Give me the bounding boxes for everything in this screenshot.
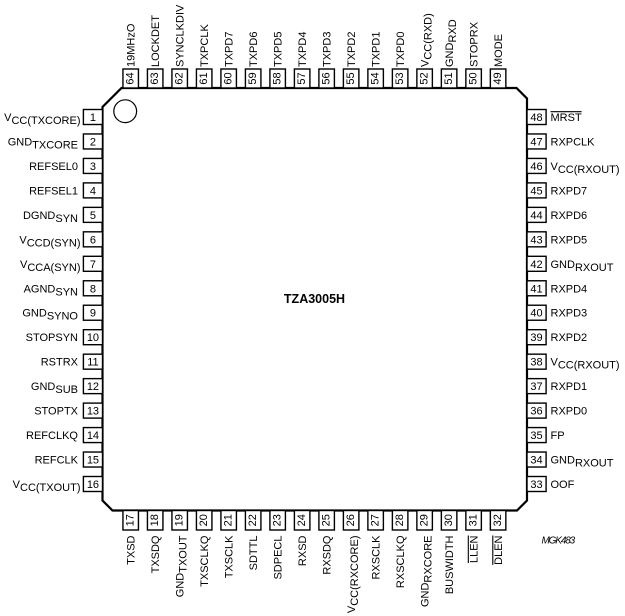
svg-text:14: 14 [87, 430, 99, 442]
svg-text:40: 40 [530, 308, 542, 320]
svg-text:19: 19 [174, 514, 186, 526]
svg-text:RXSDQ: RXSDQ [322, 535, 334, 575]
svg-text:RXPD6: RXPD6 [551, 210, 588, 222]
svg-text:34: 34 [530, 455, 542, 467]
svg-text:VCC(RXOUT): VCC(RXOUT) [551, 161, 620, 176]
svg-text:53: 53 [394, 72, 406, 84]
svg-text:RXPD5: RXPD5 [551, 234, 588, 246]
svg-text:11: 11 [87, 357, 98, 369]
svg-text:REFCLKQ: REFCLKQ [26, 430, 78, 442]
svg-text:LLEN: LLEN [469, 535, 481, 563]
svg-text:17: 17 [125, 514, 137, 526]
svg-text:MODE: MODE [493, 34, 505, 67]
svg-text:TXPD1: TXPD1 [371, 32, 383, 67]
svg-text:2: 2 [90, 136, 96, 148]
svg-text:45: 45 [530, 185, 542, 197]
svg-text:RXSCLK: RXSCLK [371, 535, 383, 580]
svg-text:DLEN: DLEN [493, 535, 505, 564]
svg-text:29: 29 [419, 514, 431, 526]
svg-text:DGNDSYN: DGNDSYN [23, 210, 78, 225]
svg-text:RXPD4: RXPD4 [551, 283, 588, 295]
svg-text:43: 43 [530, 234, 542, 246]
svg-text:6: 6 [90, 234, 96, 246]
svg-text:7: 7 [90, 259, 96, 271]
svg-text:VCCA(SYN): VCCA(SYN) [20, 259, 81, 274]
svg-text:BUSWIDTH: BUSWIDTH [444, 535, 456, 594]
svg-text:51: 51 [443, 72, 455, 84]
svg-text:57: 57 [296, 72, 308, 84]
svg-text:RXPD3: RXPD3 [551, 308, 588, 320]
svg-text:TXSDQ: TXSDQ [150, 535, 162, 573]
svg-text:RXPD7: RXPD7 [551, 185, 588, 197]
svg-text:62: 62 [174, 72, 186, 84]
svg-text:20: 20 [198, 514, 210, 526]
svg-text:TZA3005H: TZA3005H [284, 292, 345, 306]
svg-text:LOCKDET: LOCKDET [150, 15, 162, 67]
svg-text:TXPCLK: TXPCLK [199, 24, 211, 67]
svg-text:TXPD0: TXPD0 [395, 32, 407, 67]
svg-text:8: 8 [90, 283, 96, 295]
svg-text:60: 60 [223, 72, 235, 84]
svg-text:59: 59 [247, 72, 259, 84]
svg-text:1: 1 [90, 112, 96, 124]
svg-text:VCCD(SYN): VCCD(SYN) [19, 234, 80, 249]
svg-text:25: 25 [321, 514, 333, 526]
svg-text:SYNCLKDIV: SYNCLKDIV [175, 4, 187, 67]
svg-text:RXPD2: RXPD2 [551, 332, 588, 344]
svg-text:48: 48 [530, 112, 542, 124]
svg-text:39: 39 [530, 332, 542, 344]
svg-text:3: 3 [90, 161, 96, 173]
svg-text:22: 22 [247, 514, 259, 526]
svg-text:GNDRXOUT: GNDRXOUT [551, 259, 614, 274]
svg-text:31: 31 [468, 514, 480, 526]
svg-text:GNDTXOUT: GNDTXOUT [175, 535, 190, 597]
svg-text:GNDSUB: GNDSUB [31, 381, 78, 396]
svg-text:42: 42 [530, 259, 542, 271]
svg-text:15: 15 [87, 455, 99, 467]
svg-text:REFSEL1: REFSEL1 [29, 185, 78, 197]
svg-text:GNDRXOUT: GNDRXOUT [551, 455, 614, 470]
svg-text:61: 61 [198, 72, 210, 84]
svg-text:STOPSYN: STOPSYN [26, 332, 78, 344]
svg-text:47: 47 [530, 136, 542, 148]
svg-text:12: 12 [87, 381, 99, 393]
svg-text:TXPD6: TXPD6 [248, 32, 260, 67]
svg-text:32: 32 [492, 514, 504, 526]
svg-text:44: 44 [530, 210, 542, 222]
svg-text:OOF: OOF [551, 479, 575, 491]
svg-text:49: 49 [492, 72, 504, 84]
svg-text:REFCLK: REFCLK [35, 455, 79, 467]
svg-text:4: 4 [90, 185, 96, 197]
svg-text:GNDSYNO: GNDSYNO [22, 308, 78, 323]
svg-text:55: 55 [345, 72, 357, 84]
svg-text:RSTRX: RSTRX [41, 357, 79, 369]
svg-text:19MHzO: 19MHzO [126, 23, 138, 67]
svg-text:64: 64 [125, 72, 137, 84]
svg-text:26: 26 [345, 514, 357, 526]
svg-text:REFSEL0: REFSEL0 [29, 161, 78, 173]
svg-text:13: 13 [87, 406, 99, 418]
svg-text:41: 41 [530, 283, 542, 295]
svg-text:5: 5 [90, 210, 96, 222]
svg-text:VCC(TXCORE): VCC(TXCORE) [4, 112, 80, 127]
svg-text:50: 50 [468, 72, 480, 84]
svg-text:30: 30 [443, 514, 455, 526]
svg-text:TXSCLK: TXSCLK [224, 535, 236, 578]
svg-text:GNDRXCORE: GNDRXCORE [420, 536, 435, 608]
svg-text:SDTTL: SDTTL [248, 536, 260, 571]
svg-text:TXSCLKQ: TXSCLKQ [199, 535, 211, 587]
svg-text:37: 37 [530, 381, 542, 393]
svg-text:46: 46 [530, 161, 542, 173]
svg-text:RXSCLKQ: RXSCLKQ [395, 535, 407, 588]
svg-text:10: 10 [87, 332, 99, 344]
svg-text:STOPRX: STOPRX [469, 21, 481, 67]
svg-text:16: 16 [87, 479, 99, 491]
svg-text:33: 33 [530, 479, 542, 491]
svg-text:GNDRXD: GNDRXD [444, 19, 459, 67]
svg-text:RXPD0: RXPD0 [551, 406, 588, 418]
svg-text:TXPD5: TXPD5 [273, 32, 285, 67]
svg-text:18: 18 [149, 514, 161, 526]
svg-text:RXPD1: RXPD1 [551, 381, 588, 393]
svg-text:VCC(RXOUT): VCC(RXOUT) [551, 357, 620, 372]
svg-text:MRST: MRST [551, 112, 582, 124]
svg-text:MGK483: MGK483 [542, 536, 576, 547]
svg-text:TXPD2: TXPD2 [346, 32, 358, 67]
svg-text:AGNDSYN: AGNDSYN [24, 283, 78, 298]
svg-text:TXPD3: TXPD3 [322, 32, 334, 67]
svg-text:28: 28 [394, 514, 406, 526]
svg-text:63: 63 [149, 72, 161, 84]
svg-text:VCC(TXOUT): VCC(TXOUT) [13, 479, 81, 494]
svg-text:STOPTX: STOPTX [34, 406, 78, 418]
svg-text:VCC(RXCORE): VCC(RXCORE) [346, 536, 361, 614]
svg-text:FP: FP [551, 430, 565, 442]
svg-text:27: 27 [370, 514, 382, 526]
svg-text:SDPECL: SDPECL [273, 536, 285, 580]
svg-text:38: 38 [530, 357, 542, 369]
svg-text:TXSD: TXSD [126, 535, 138, 564]
svg-text:35: 35 [530, 430, 542, 442]
svg-text:23: 23 [272, 514, 284, 526]
svg-text:TXPD7: TXPD7 [224, 32, 236, 67]
svg-text:54: 54 [370, 72, 382, 84]
svg-text:36: 36 [530, 406, 542, 418]
svg-text:TXPD4: TXPD4 [297, 32, 309, 67]
svg-text:24: 24 [296, 514, 308, 526]
svg-text:56: 56 [321, 72, 333, 84]
svg-text:9: 9 [90, 308, 96, 320]
svg-text:RXSD: RXSD [297, 535, 309, 566]
svg-text:58: 58 [272, 72, 284, 84]
svg-text:GNDTXCORE: GNDTXCORE [8, 136, 78, 151]
svg-text:VCC(RXD): VCC(RXD) [420, 13, 435, 67]
svg-text:52: 52 [419, 72, 431, 84]
svg-text:RXPCLK: RXPCLK [551, 136, 596, 148]
svg-text:21: 21 [223, 514, 235, 526]
